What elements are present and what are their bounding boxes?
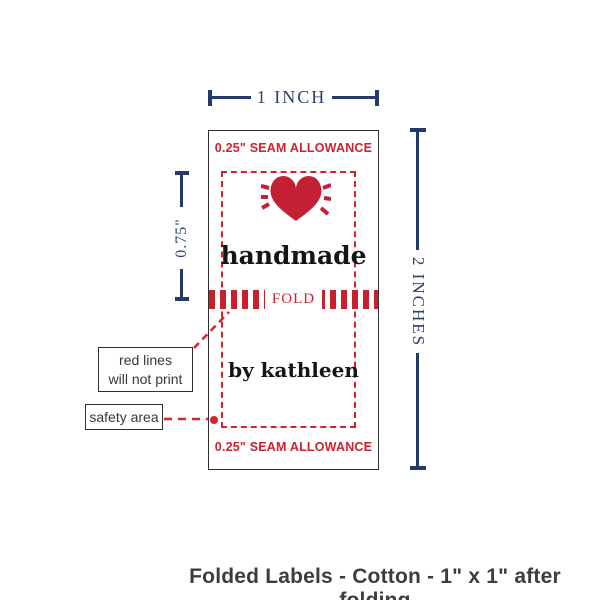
seam-allowance-bottom-text: 0.25" SEAM ALLOWANCE	[209, 440, 378, 454]
callout-red-lines: red lines will not print	[98, 347, 193, 392]
dimension-end-cap	[410, 466, 426, 470]
callout-safety-area: safety area	[85, 404, 163, 430]
dimension-end-cap	[410, 128, 426, 132]
callout-red-lines-text-line2: will not print	[109, 370, 183, 388]
width-dimension-text: 1 INCH	[257, 87, 327, 108]
fold-label: FOLD	[265, 290, 322, 309]
width-dimension-label: 1 INCH	[251, 76, 332, 119]
dimension-end-cap	[208, 90, 212, 106]
height-dimension-label: 2 INCHES	[397, 250, 439, 353]
brand-text-by-kathleen: by kathleen	[209, 358, 378, 382]
dimension-end-cap	[175, 171, 189, 175]
product-caption: Folded Labels - Cotton - 1" x 1" after f…	[160, 565, 590, 600]
fold-half-dimension-label: 0.75"	[165, 207, 199, 269]
callout-safety-area-text: safety area	[89, 408, 158, 426]
dimension-end-cap	[175, 297, 189, 301]
dimension-end-cap	[375, 90, 379, 106]
callout-red-lines-text-line1: red lines	[119, 351, 172, 369]
height-dimension-text: 2 INCHES	[408, 256, 428, 346]
label-template-diagram: 1 INCH 2 INCHES 0.75" 0.25" SEAM ALLOWAN…	[0, 0, 600, 600]
brand-text-handmade: handmade	[209, 241, 378, 270]
seam-allowance-top-text: 0.25" SEAM ALLOWANCE	[209, 141, 378, 155]
fold-line-stripes: FOLD	[209, 290, 378, 309]
heart-icon	[261, 171, 331, 231]
label-outline: 0.25" SEAM ALLOWANCE handmade FOLD by ka…	[208, 130, 379, 470]
fold-half-dimension-text: 0.75"	[173, 218, 191, 258]
